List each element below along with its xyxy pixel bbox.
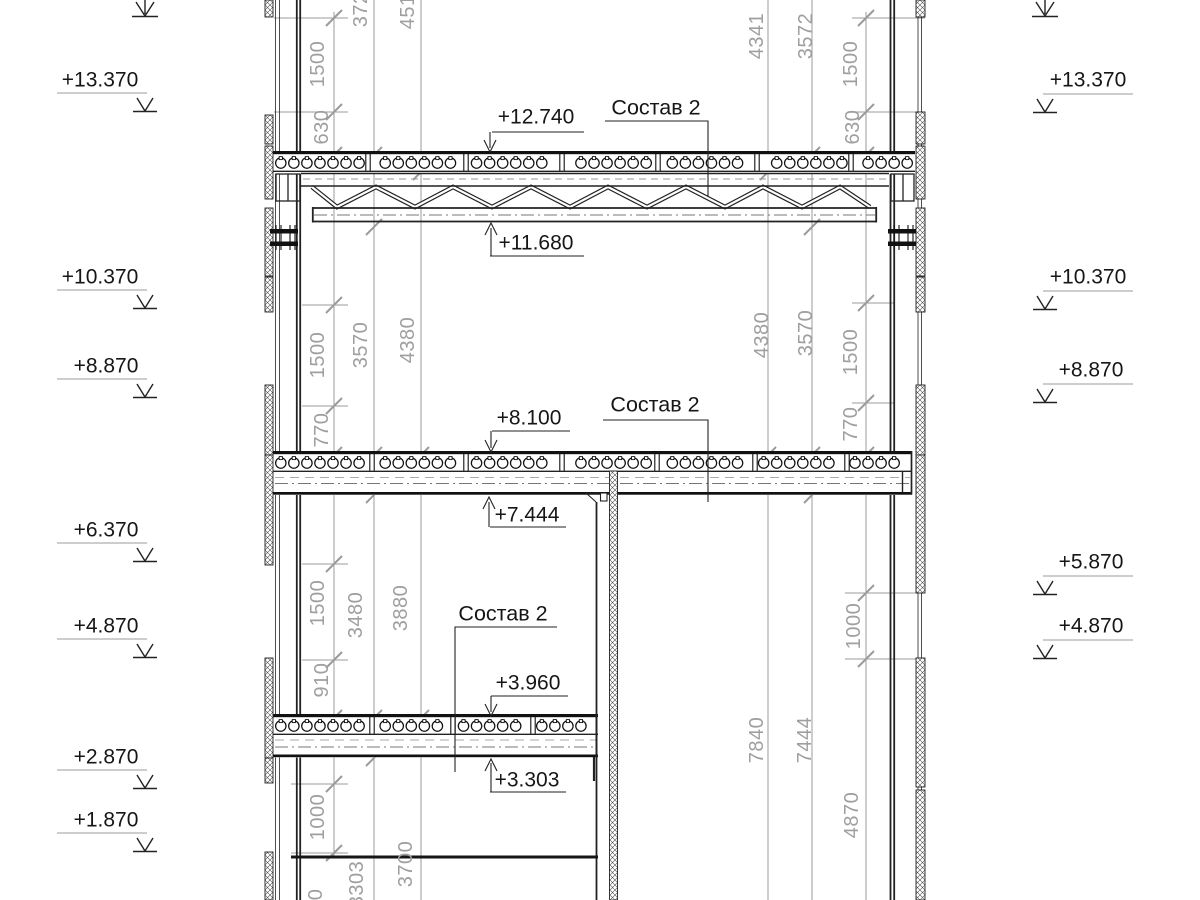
columns [297, 0, 894, 900]
elevation-label: +8.870 [1059, 360, 1124, 381]
elevation-label: +2.870 [74, 747, 139, 768]
dimension-label: 970 [306, 889, 326, 900]
dimension-label: 7840 [747, 717, 767, 764]
elevation-label: +10.370 [62, 267, 139, 288]
glazing-lines [276, 0, 922, 900]
dimension-label: 7444 [795, 717, 815, 764]
level-label: +12.740 [498, 107, 575, 128]
dimension-label: 1500 [308, 580, 328, 627]
elevation-label: +1.870 [74, 810, 139, 831]
dimension-label: 1500 [841, 329, 861, 376]
level-label: +11.680 [499, 233, 574, 254]
composition-label: Состав 2 [611, 97, 700, 119]
roof-truss [276, 174, 914, 223]
dimension-label: 770 [312, 413, 332, 448]
dimension-label: 4341 [747, 13, 767, 60]
level-label: +8.100 [497, 408, 562, 429]
bolted-splice-icons [270, 225, 916, 250]
dimension-label: 3480 [346, 592, 366, 639]
elevation-label: +13.370 [1050, 70, 1127, 91]
elevation-label: +13.370 [62, 70, 139, 91]
dimension-label: 770 [841, 407, 861, 442]
floor-line [291, 856, 598, 859]
dimension-label: 3572 [796, 13, 816, 60]
elevation-label: +6.370 [74, 520, 139, 541]
dimension-label: 910 [312, 663, 332, 698]
dimension-label: 1500 [308, 332, 328, 379]
level-label: +3.960 [496, 673, 561, 694]
dimension-label: 4870 [842, 792, 862, 839]
dimension-label: 3880 [391, 585, 411, 632]
elevation-label: +4.870 [1059, 616, 1124, 637]
dimension-label: 4380 [398, 317, 418, 364]
dimension-label: 3570 [351, 322, 371, 369]
dimension-label: 1000 [308, 794, 328, 841]
hollow-core-slabs [273, 151, 915, 758]
elevation-label: +4.870 [74, 616, 139, 637]
section-drawing: +13.370 +10.370 +8.870 +6.370 +4.870 +2.… [0, 0, 1200, 900]
dimension-label: 3570 [796, 310, 816, 357]
level-label: +3.303 [495, 770, 560, 791]
dimension-label: 3303 [347, 861, 367, 900]
dimension-label: 4380 [752, 312, 772, 359]
elevation-label: +10.370 [1050, 267, 1127, 288]
drawing-canvas [0, 0, 1200, 900]
dimension-label: 1500 [841, 41, 861, 88]
dimension-label: 630 [843, 110, 863, 145]
composition-label: Состав 2 [458, 603, 547, 625]
dimension-label: 3725 [351, 0, 371, 27]
dimension-label: 3700 [396, 841, 416, 888]
dimension-label: 4516 [398, 0, 418, 29]
dimension-label: 1500 [308, 41, 328, 88]
level-label: +7.444 [495, 505, 560, 526]
dimension-label: 630 [312, 110, 332, 145]
elevation-label: +8.870 [74, 356, 139, 377]
dimension-label: 1000 [844, 603, 864, 650]
composition-label: Состав 2 [610, 394, 699, 416]
elevation-label: +5.870 [1059, 552, 1124, 573]
